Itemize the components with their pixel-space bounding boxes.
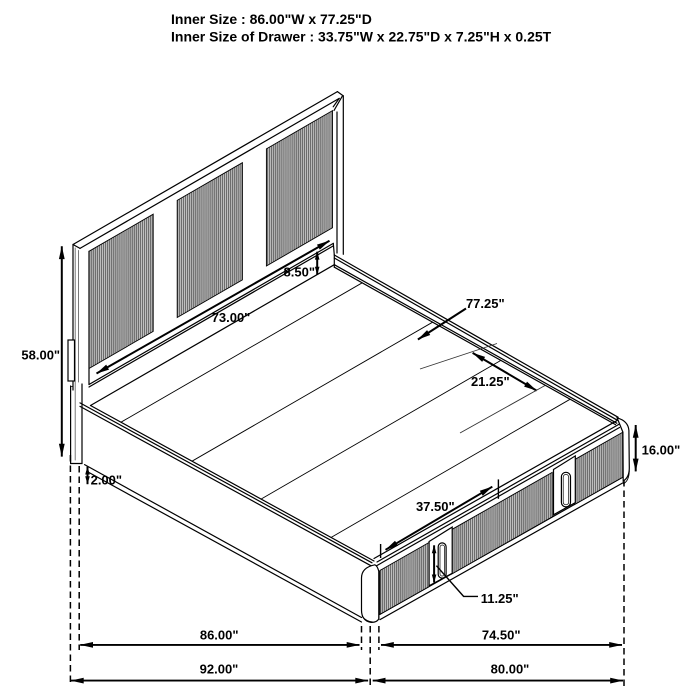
svg-text:73.00": 73.00": [212, 310, 251, 325]
svg-text:37.50": 37.50": [416, 499, 455, 514]
svg-text:Inner Size : 86.00"W x 77.25"D: Inner Size : 86.00"W x 77.25"D: [171, 11, 372, 27]
svg-text:74.50": 74.50": [482, 628, 521, 643]
svg-text:8.50": 8.50": [284, 264, 315, 279]
svg-text:58.00": 58.00": [21, 348, 60, 363]
svg-text:2.00": 2.00": [91, 473, 122, 488]
svg-text:92.00": 92.00": [200, 662, 239, 677]
svg-text:11.25": 11.25": [481, 591, 519, 606]
svg-text:77.25": 77.25": [466, 296, 505, 311]
svg-text:86.00": 86.00": [200, 628, 239, 643]
svg-text:21.25": 21.25": [471, 374, 510, 389]
svg-text:16.00": 16.00": [642, 443, 681, 458]
svg-text:Inner Size of Drawer : 33.75"W: Inner Size of Drawer : 33.75"W x 22.75"D…: [171, 29, 552, 45]
svg-text:80.00": 80.00": [491, 662, 530, 677]
